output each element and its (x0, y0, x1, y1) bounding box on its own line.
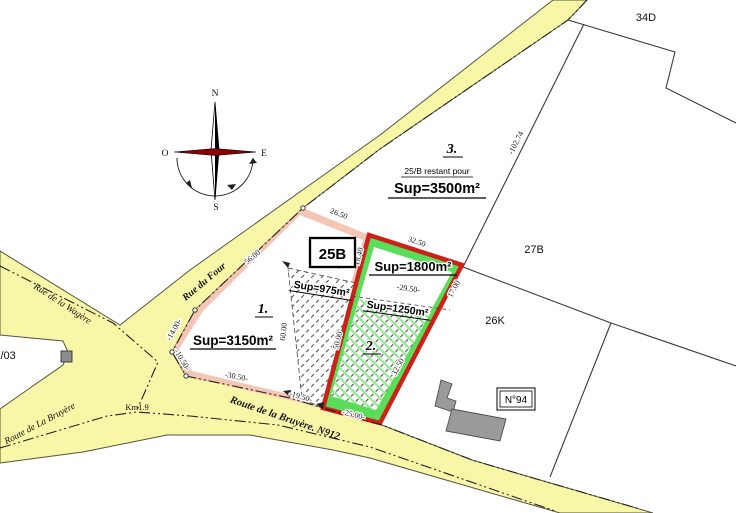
zone2-number-text: 2. (365, 339, 377, 354)
dim-60: 60.00 (278, 322, 289, 341)
parcel-27b-label: 27B (524, 244, 544, 256)
plan-canvas: N S O E 26.50 56.00 -14.00- -10.50- -30.… (0, 0, 736, 513)
zone3-sup-text: Sup=3500m² (394, 181, 480, 197)
needle-horizontal (174, 149, 256, 156)
dim-26-50: 26.50 (329, 206, 349, 221)
compass-s: S (213, 203, 218, 213)
parcel-25b-text: 25B (319, 246, 347, 263)
zone3-note-text: 25/B restant pour (404, 166, 469, 176)
compass-o: O (162, 149, 169, 159)
cadastral-plan: N S O E 26.50 56.00 -14.00- -10.50- -30.… (0, 0, 736, 513)
dim-102-74: -102.74 (506, 130, 525, 156)
zone2-sup-text: Sup=1800m² (375, 259, 453, 274)
parcel-34d-label: 34D (636, 12, 656, 24)
zone3-sup: Sup=3500m² (388, 181, 486, 198)
building-small-square (61, 351, 72, 362)
house-n94-text: N°94 (505, 395, 528, 406)
house-n94-box: N°94 (497, 388, 535, 410)
zone3-number-text: 3. (446, 142, 458, 157)
compass-rose: N S O E (162, 89, 268, 213)
zone1-sup-text: Sup=3150m² (193, 333, 273, 348)
zone1-sup: Sup=3150m² (190, 333, 276, 349)
parcel-25b-box: 25B (310, 238, 355, 267)
parcel-5303-label: 53/03 (0, 350, 16, 362)
building-rectangle (446, 409, 506, 441)
zone1-number-text: 1. (258, 302, 269, 317)
km-marker: Km1.9 (125, 402, 148, 412)
building-l-shape (435, 380, 456, 412)
parcel-26k-label: 26K (485, 315, 505, 327)
boundary-34d (568, 20, 736, 123)
zone2-sup: Sup=1800m² (369, 259, 457, 275)
zone3-note: 25/B restant pour (401, 166, 473, 177)
zone3-number: 3. (443, 142, 463, 157)
boundary-26k-east (550, 323, 611, 477)
compass-e: E (261, 149, 267, 159)
compass-n: N (212, 89, 219, 99)
